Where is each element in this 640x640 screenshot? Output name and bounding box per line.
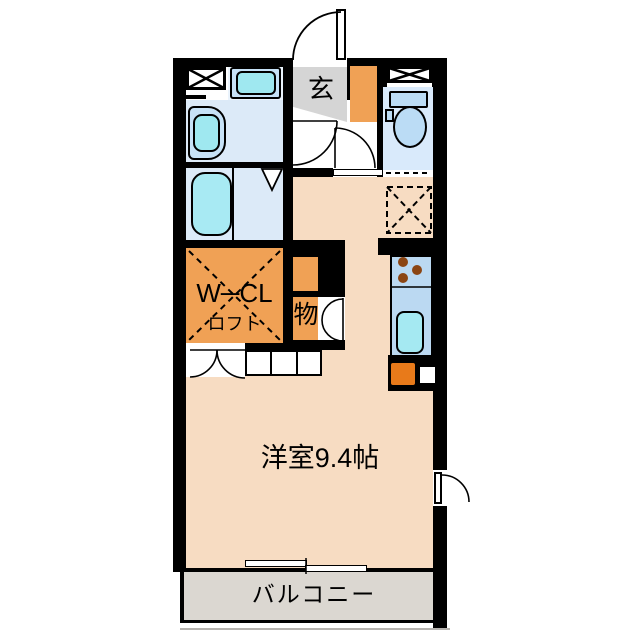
storage-folding-door-icon xyxy=(322,298,343,341)
side-door-arc-icon xyxy=(442,475,469,502)
storage-label: 物 xyxy=(291,302,321,330)
floor-plan: 玄 W─CL ロフト 物 洋室9.4帖 バルコニー xyxy=(0,0,640,640)
burner-icons xyxy=(398,257,422,283)
entrance-label: 玄 xyxy=(295,75,347,104)
entrance-door-arc-icon xyxy=(293,12,341,60)
loft-label: ロフト xyxy=(186,315,283,335)
wcl-label: W─CL xyxy=(186,279,283,308)
hall-door-arcs-icon xyxy=(293,121,375,168)
bath-door-icon xyxy=(262,169,282,190)
main-room-label: 洋室9.4帖 xyxy=(203,444,437,474)
balcony-label: バルコニー xyxy=(214,582,414,607)
wcl-door-arcs-icon xyxy=(190,350,245,378)
fridge-space-icon xyxy=(387,187,431,233)
